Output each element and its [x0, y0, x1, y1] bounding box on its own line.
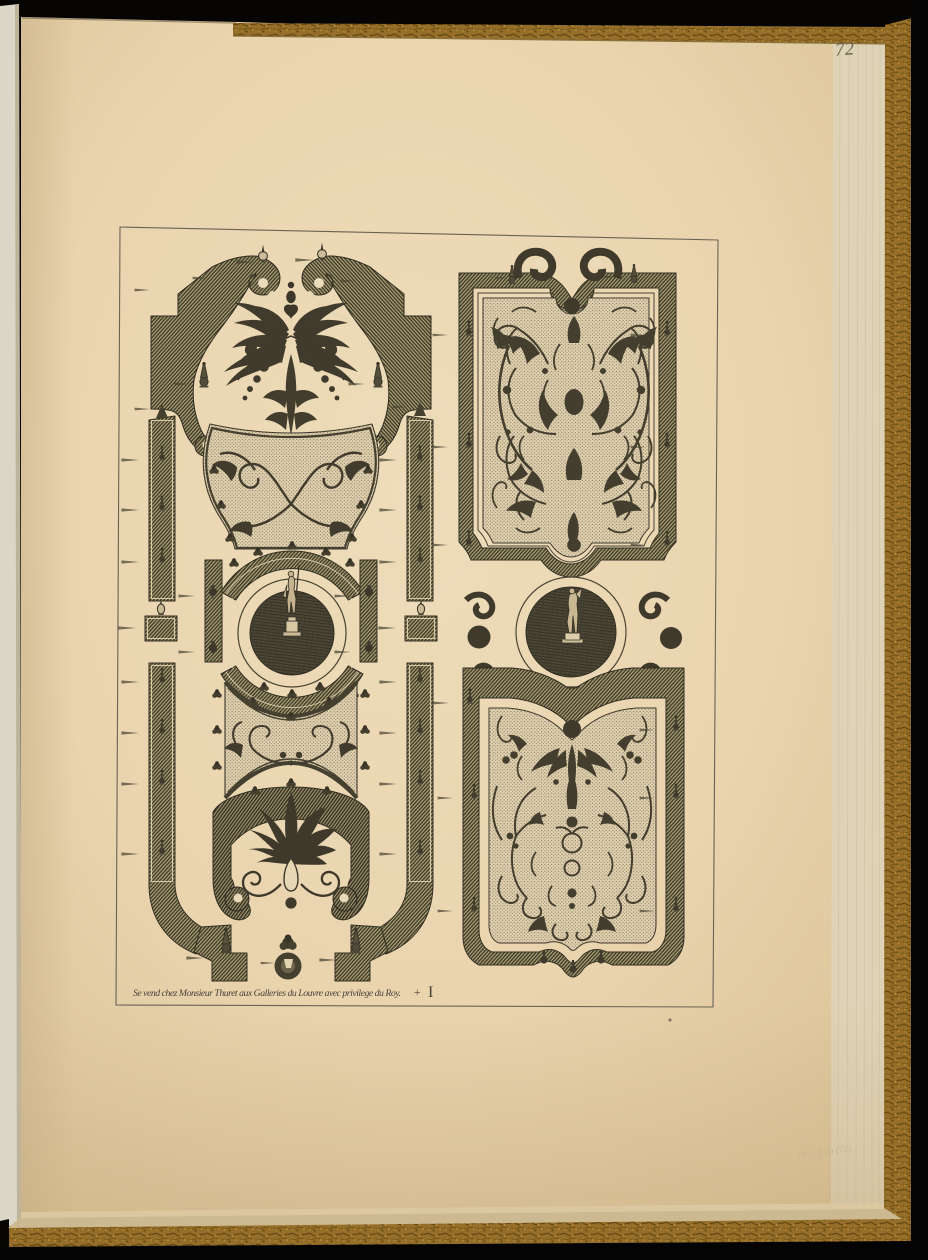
svg-text:72: 72: [834, 38, 855, 61]
svg-text:Se vend chez Monsieur Thuret a: Se vend chez Monsieur Thuret aux Galleri…: [133, 988, 401, 999]
svg-text:I: I: [428, 984, 433, 1001]
svg-text:+: +: [413, 985, 421, 999]
